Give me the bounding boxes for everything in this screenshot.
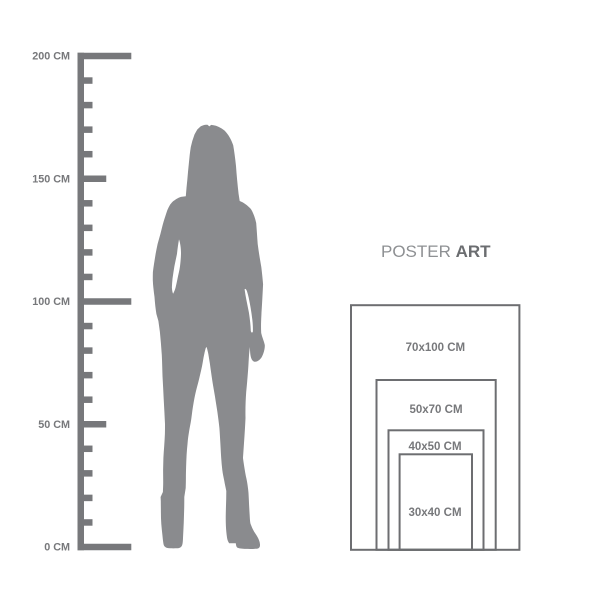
svg-text:100 CM: 100 CM: [32, 296, 70, 308]
svg-text:40x50 CM: 40x50 CM: [408, 441, 461, 453]
svg-text:30x40 CM: 30x40 CM: [408, 507, 461, 519]
svg-text:70x100 CM: 70x100 CM: [406, 342, 465, 354]
svg-text:150 CM: 150 CM: [32, 173, 70, 185]
svg-text:POSTER ART: POSTER ART: [381, 242, 491, 261]
svg-text:50 CM: 50 CM: [38, 419, 70, 431]
svg-text:0 CM: 0 CM: [44, 542, 70, 554]
svg-text:200 CM: 200 CM: [32, 51, 70, 63]
svg-text:50x70 CM: 50x70 CM: [409, 404, 462, 416]
